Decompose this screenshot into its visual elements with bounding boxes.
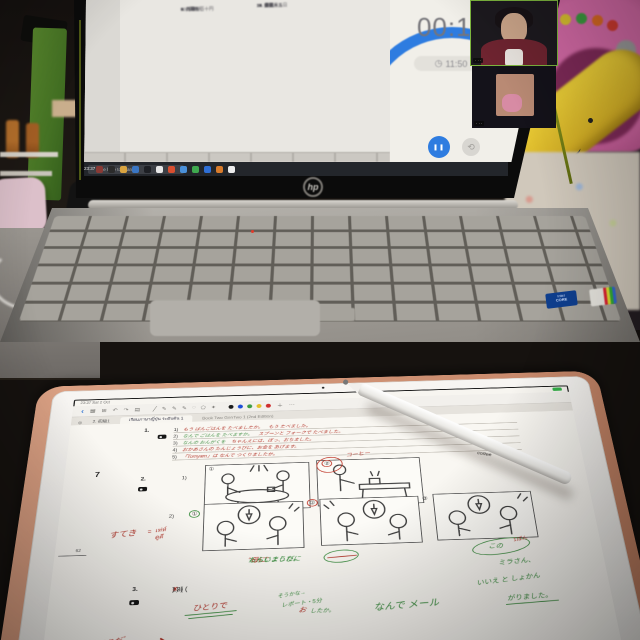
ink-color-dots[interactable] [229, 404, 271, 409]
spec-sticker [589, 286, 617, 306]
comic-panel-drawing [433, 492, 537, 540]
participant-video-active[interactable]: · · · [470, 0, 558, 66]
redo-icon[interactable]: ↷ [123, 407, 128, 412]
section3-number: 3. [132, 587, 138, 593]
tablet-body: 23:37 Sat 2 Oct ‹ ▦ ⊞ ↶ ↷ ▤ ╱✎✎✎◌⬠✦ ＋ ⋯ [12, 376, 640, 640]
pen-tool-icon: ◌ [192, 405, 196, 410]
add-page-icon[interactable]: ⊞ [101, 408, 107, 413]
item-label: 1) [174, 428, 179, 432]
green-note: いいえ と しょかん [475, 571, 541, 588]
participant-collar [505, 49, 523, 66]
taskbar-app-icon [180, 166, 187, 173]
annotation-coffee: コーヒー [345, 449, 370, 458]
vocab-note-thai: ดูดี [154, 533, 163, 542]
toy-ball [576, 13, 587, 24]
more-icon[interactable]: ⋯ [289, 402, 295, 407]
alarm-clock-icon: ◷ [435, 58, 443, 69]
participant-name-label: · · · [473, 58, 483, 63]
row-label: 1) [182, 476, 187, 481]
taskbar-app-icon [156, 166, 163, 173]
item-label: 2) [173, 435, 178, 439]
battery-icon [552, 387, 562, 390]
taskbar-app-icon [108, 166, 115, 173]
taskbar-app-icon [132, 166, 139, 173]
panel-number: ① [209, 466, 215, 472]
vocab-note-eq: = [148, 530, 152, 536]
green-note: ミラさん、 [497, 555, 536, 567]
taskbar-app-icon [144, 166, 151, 173]
pen-tool-icon: ✎ [161, 406, 166, 411]
vocab-list-right: 11. 上手12. 帽子屋13. 中国14. 先生15. 銀行16. 病気17.… [257, 1, 370, 155]
item-label: 5) [172, 455, 177, 459]
comic-panel-drawing [203, 502, 303, 551]
green-note: なんで メール [373, 595, 440, 614]
participant-name-label: · · · [474, 121, 484, 126]
pen-tool-icon: ✦ [211, 405, 216, 410]
trackpad [150, 300, 320, 336]
panel-number-circled-green: ① [189, 510, 200, 518]
hp-logo: hp [303, 177, 323, 197]
ink-color-dot [257, 404, 262, 408]
taskbar-app-icon [204, 166, 211, 173]
participant-video[interactable]: · · · [472, 66, 556, 128]
back-icon[interactable]: ‹ [81, 408, 85, 415]
green-note: したか。 [310, 605, 336, 614]
toy-ball [592, 15, 603, 26]
panel-number: ③ [422, 496, 428, 502]
listening-icon [138, 487, 147, 492]
comic-panel-drawing [320, 497, 422, 545]
front-camera [322, 387, 325, 389]
section2-number: 2. [140, 477, 146, 482]
power-led [251, 230, 254, 233]
document-status-bar[interactable] [84, 152, 390, 162]
taskbar-app-icon [228, 166, 235, 173]
ink-color-dot [229, 405, 234, 409]
toy-ball [607, 20, 618, 31]
thumbnails-icon[interactable]: ▦ [90, 408, 96, 413]
windows-taskbar: ⊞ Type here to search 23:37 [84, 162, 508, 176]
item-label: 3) [173, 442, 178, 446]
pen-tool-icon: ✎ [172, 406, 177, 411]
pen-tool-icon: ✎ [182, 406, 187, 411]
layout-icon[interactable]: ▤ [134, 407, 140, 412]
worksheet-page[interactable]: 1. 1) もう ばんごはんを たべましたか。 もう たべました。 2) なんで… [31, 410, 639, 640]
item-label: 4) [172, 449, 177, 453]
answer-sentence-part: もらいました。 [248, 554, 301, 564]
timer-pause-button[interactable]: ❚❚ [428, 136, 450, 158]
footer-line [58, 555, 86, 557]
toy-ball [560, 14, 571, 25]
bezel-edge-glow [79, 20, 81, 180]
vocab-item: 10. 日本人 [181, 6, 203, 12]
listening-icon [129, 600, 139, 605]
tablet: 23:37 Sat 2 Oct ‹ ▦ ⊞ ↶ ↷ ▤ ╱✎✎✎◌⬠✦ ＋ ⋯ [12, 376, 640, 640]
vocab-note-jp: すてき [109, 526, 137, 540]
undo-icon[interactable]: ↶ [112, 408, 118, 413]
shelf-rail [0, 171, 52, 176]
footer-number: 62 [75, 549, 81, 554]
document-sidebar [84, 0, 120, 162]
taskbar-app-icon [168, 166, 175, 173]
comic-panel [202, 501, 304, 551]
shelf-rail [0, 152, 58, 157]
section1-number: 1. [144, 428, 149, 433]
taskbar-app-icon [96, 166, 103, 173]
page-number: 7 [94, 471, 100, 479]
taskbar-app-icon [216, 166, 223, 173]
red-note: ゆっくりだ゛ [82, 634, 130, 640]
green-note: この [488, 541, 503, 550]
taskbar-app-icons[interactable] [96, 166, 235, 173]
answer-mark: ) [172, 586, 175, 593]
laptop-keyboard [19, 216, 622, 322]
ink-color-dot [238, 405, 243, 409]
panel-number-circled-red: ② [307, 499, 318, 507]
tablet-screen: 23:37 Sat 2 Oct ‹ ▦ ⊞ ↶ ↷ ▤ ╱✎✎✎◌⬠✦ ＋ ⋯ [31, 385, 639, 640]
photo-scene: 4. 一時5. 四日6. 八日7. 四時半8. 九時9. 二千五百十円10. 日… [0, 0, 640, 640]
alarm-time: 11:50 [446, 59, 468, 69]
taskbar-app-icon [192, 166, 199, 173]
listening-icon [158, 435, 167, 439]
taskbar-app-icon [120, 166, 127, 173]
row-label: 2) [169, 514, 175, 519]
red-note: お [298, 605, 307, 615]
profile-photo-detail [502, 94, 522, 112]
ink-color-dot [266, 404, 271, 408]
timer-reset-button[interactable]: ⟲ [462, 138, 480, 156]
video-call-overlay: · · · · · · [470, 0, 558, 128]
vocab-item: 20. 生ビール [257, 3, 283, 9]
system-tray-clock[interactable]: 23:37 [84, 167, 95, 172]
ink-color-dot [247, 404, 252, 408]
comic-panel [319, 496, 422, 546]
add-icon[interactable]: ＋ [277, 402, 283, 409]
pink-case [0, 177, 47, 236]
pen-tool-icon: ╱ [153, 406, 157, 411]
pen-tool-icons[interactable]: ╱✎✎✎◌⬠✦ [153, 405, 216, 412]
pen-tool-icon: ⬠ [201, 405, 206, 410]
